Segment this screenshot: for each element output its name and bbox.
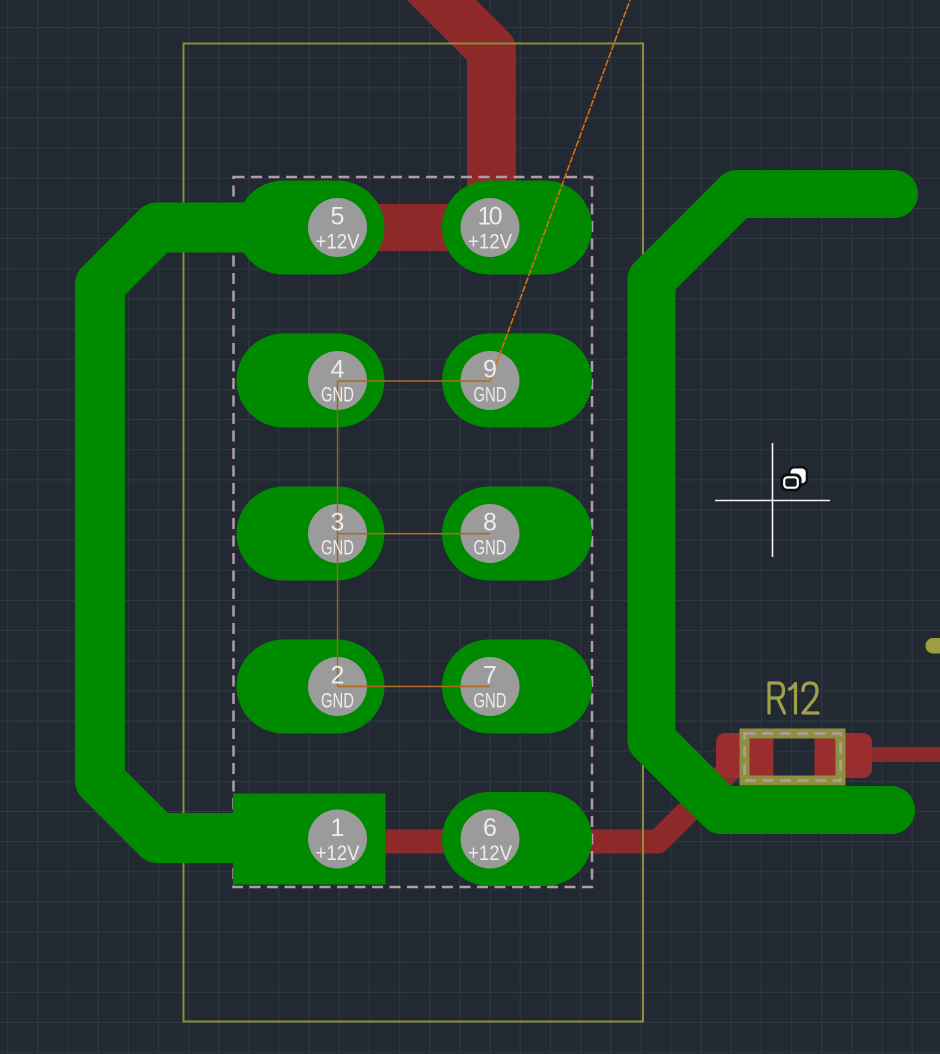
- svg-text:4: 4: [331, 356, 345, 384]
- svg-text:+12V: +12V: [468, 231, 512, 254]
- svg-text:GND: GND: [321, 690, 354, 713]
- svg-text:+12V: +12V: [316, 231, 360, 254]
- svg-text:5: 5: [331, 203, 345, 231]
- svg-text:10: 10: [478, 203, 503, 231]
- svg-text:GND: GND: [474, 384, 507, 407]
- svg-text:GND: GND: [321, 537, 354, 560]
- svg-text:8: 8: [483, 509, 497, 537]
- svg-text:6: 6: [483, 814, 497, 842]
- svg-text:GND: GND: [321, 384, 354, 407]
- svg-text:GND: GND: [474, 537, 507, 560]
- svg-text:3: 3: [331, 509, 345, 537]
- svg-text:2: 2: [331, 662, 345, 690]
- svg-text:1: 1: [331, 814, 345, 842]
- svg-text:GND: GND: [474, 690, 507, 713]
- svg-text:7: 7: [483, 662, 497, 690]
- svg-text:+12V: +12V: [316, 842, 360, 865]
- svg-text:9: 9: [483, 356, 497, 384]
- svg-text:+12V: +12V: [468, 842, 512, 865]
